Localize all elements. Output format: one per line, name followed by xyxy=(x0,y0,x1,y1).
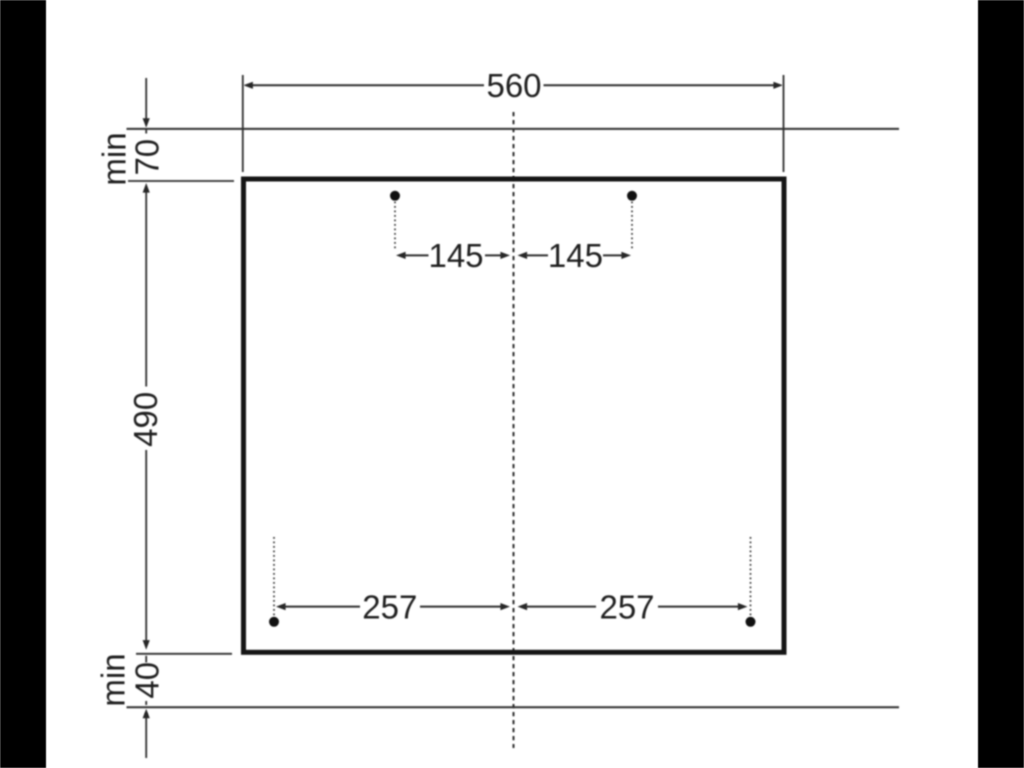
svg-text:145: 145 xyxy=(428,237,483,274)
svg-text:70: 70 xyxy=(129,139,166,176)
svg-text:min: min xyxy=(96,132,133,185)
svg-text:560: 560 xyxy=(486,67,541,104)
svg-text:145: 145 xyxy=(548,237,603,274)
svg-text:257: 257 xyxy=(362,588,417,625)
svg-text:257: 257 xyxy=(599,588,654,625)
svg-text:min: min xyxy=(95,653,132,706)
svg-text:40: 40 xyxy=(129,662,166,699)
svg-text:490: 490 xyxy=(127,392,164,447)
